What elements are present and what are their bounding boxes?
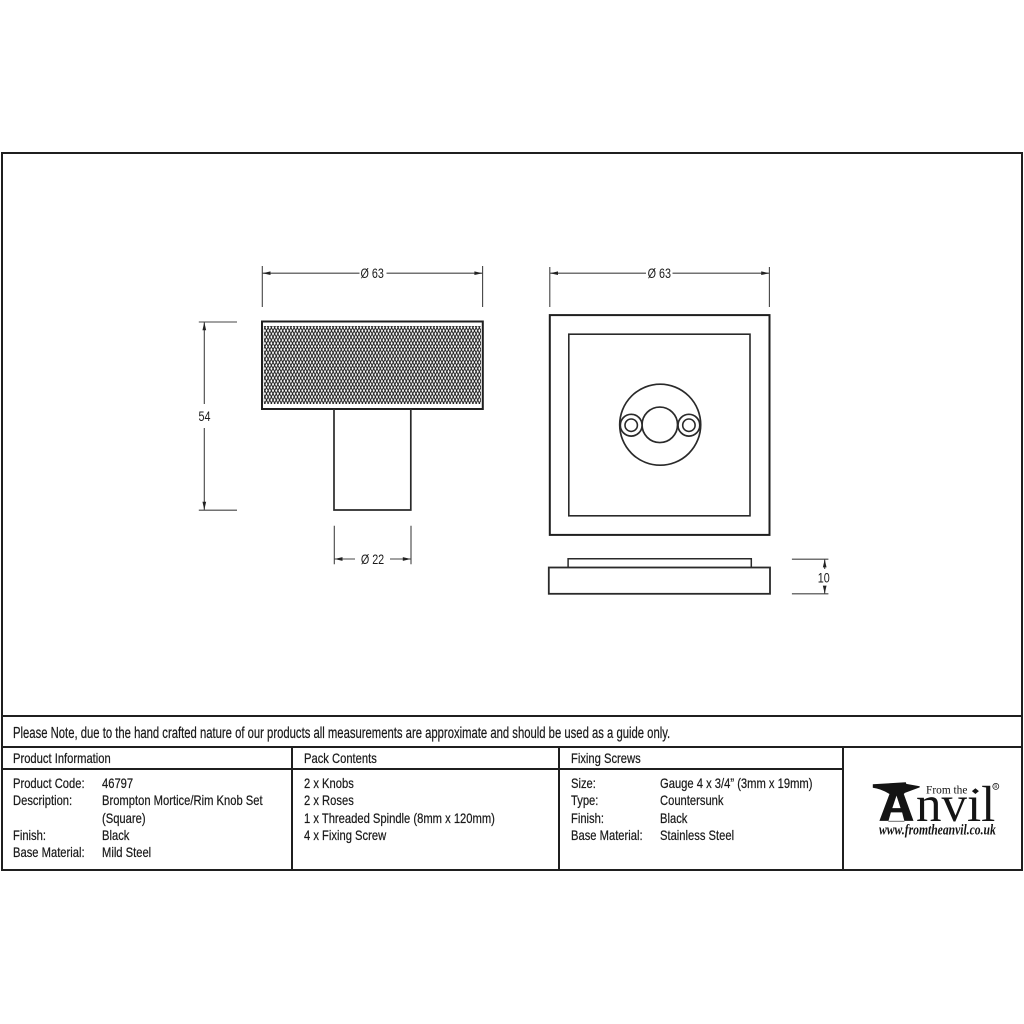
svg-text:Ø 63: Ø 63: [361, 266, 384, 282]
svg-text:Ø 22: Ø 22: [361, 551, 384, 567]
svg-text:From the: From the: [926, 783, 967, 796]
svg-text:R: R: [994, 785, 998, 790]
svg-text:www.fromtheanvil.co.uk: www.fromtheanvil.co.uk: [879, 821, 996, 838]
svg-text:Ø 63: Ø 63: [648, 266, 671, 282]
svg-text:54: 54: [199, 408, 211, 424]
svg-text:10: 10: [818, 570, 830, 586]
